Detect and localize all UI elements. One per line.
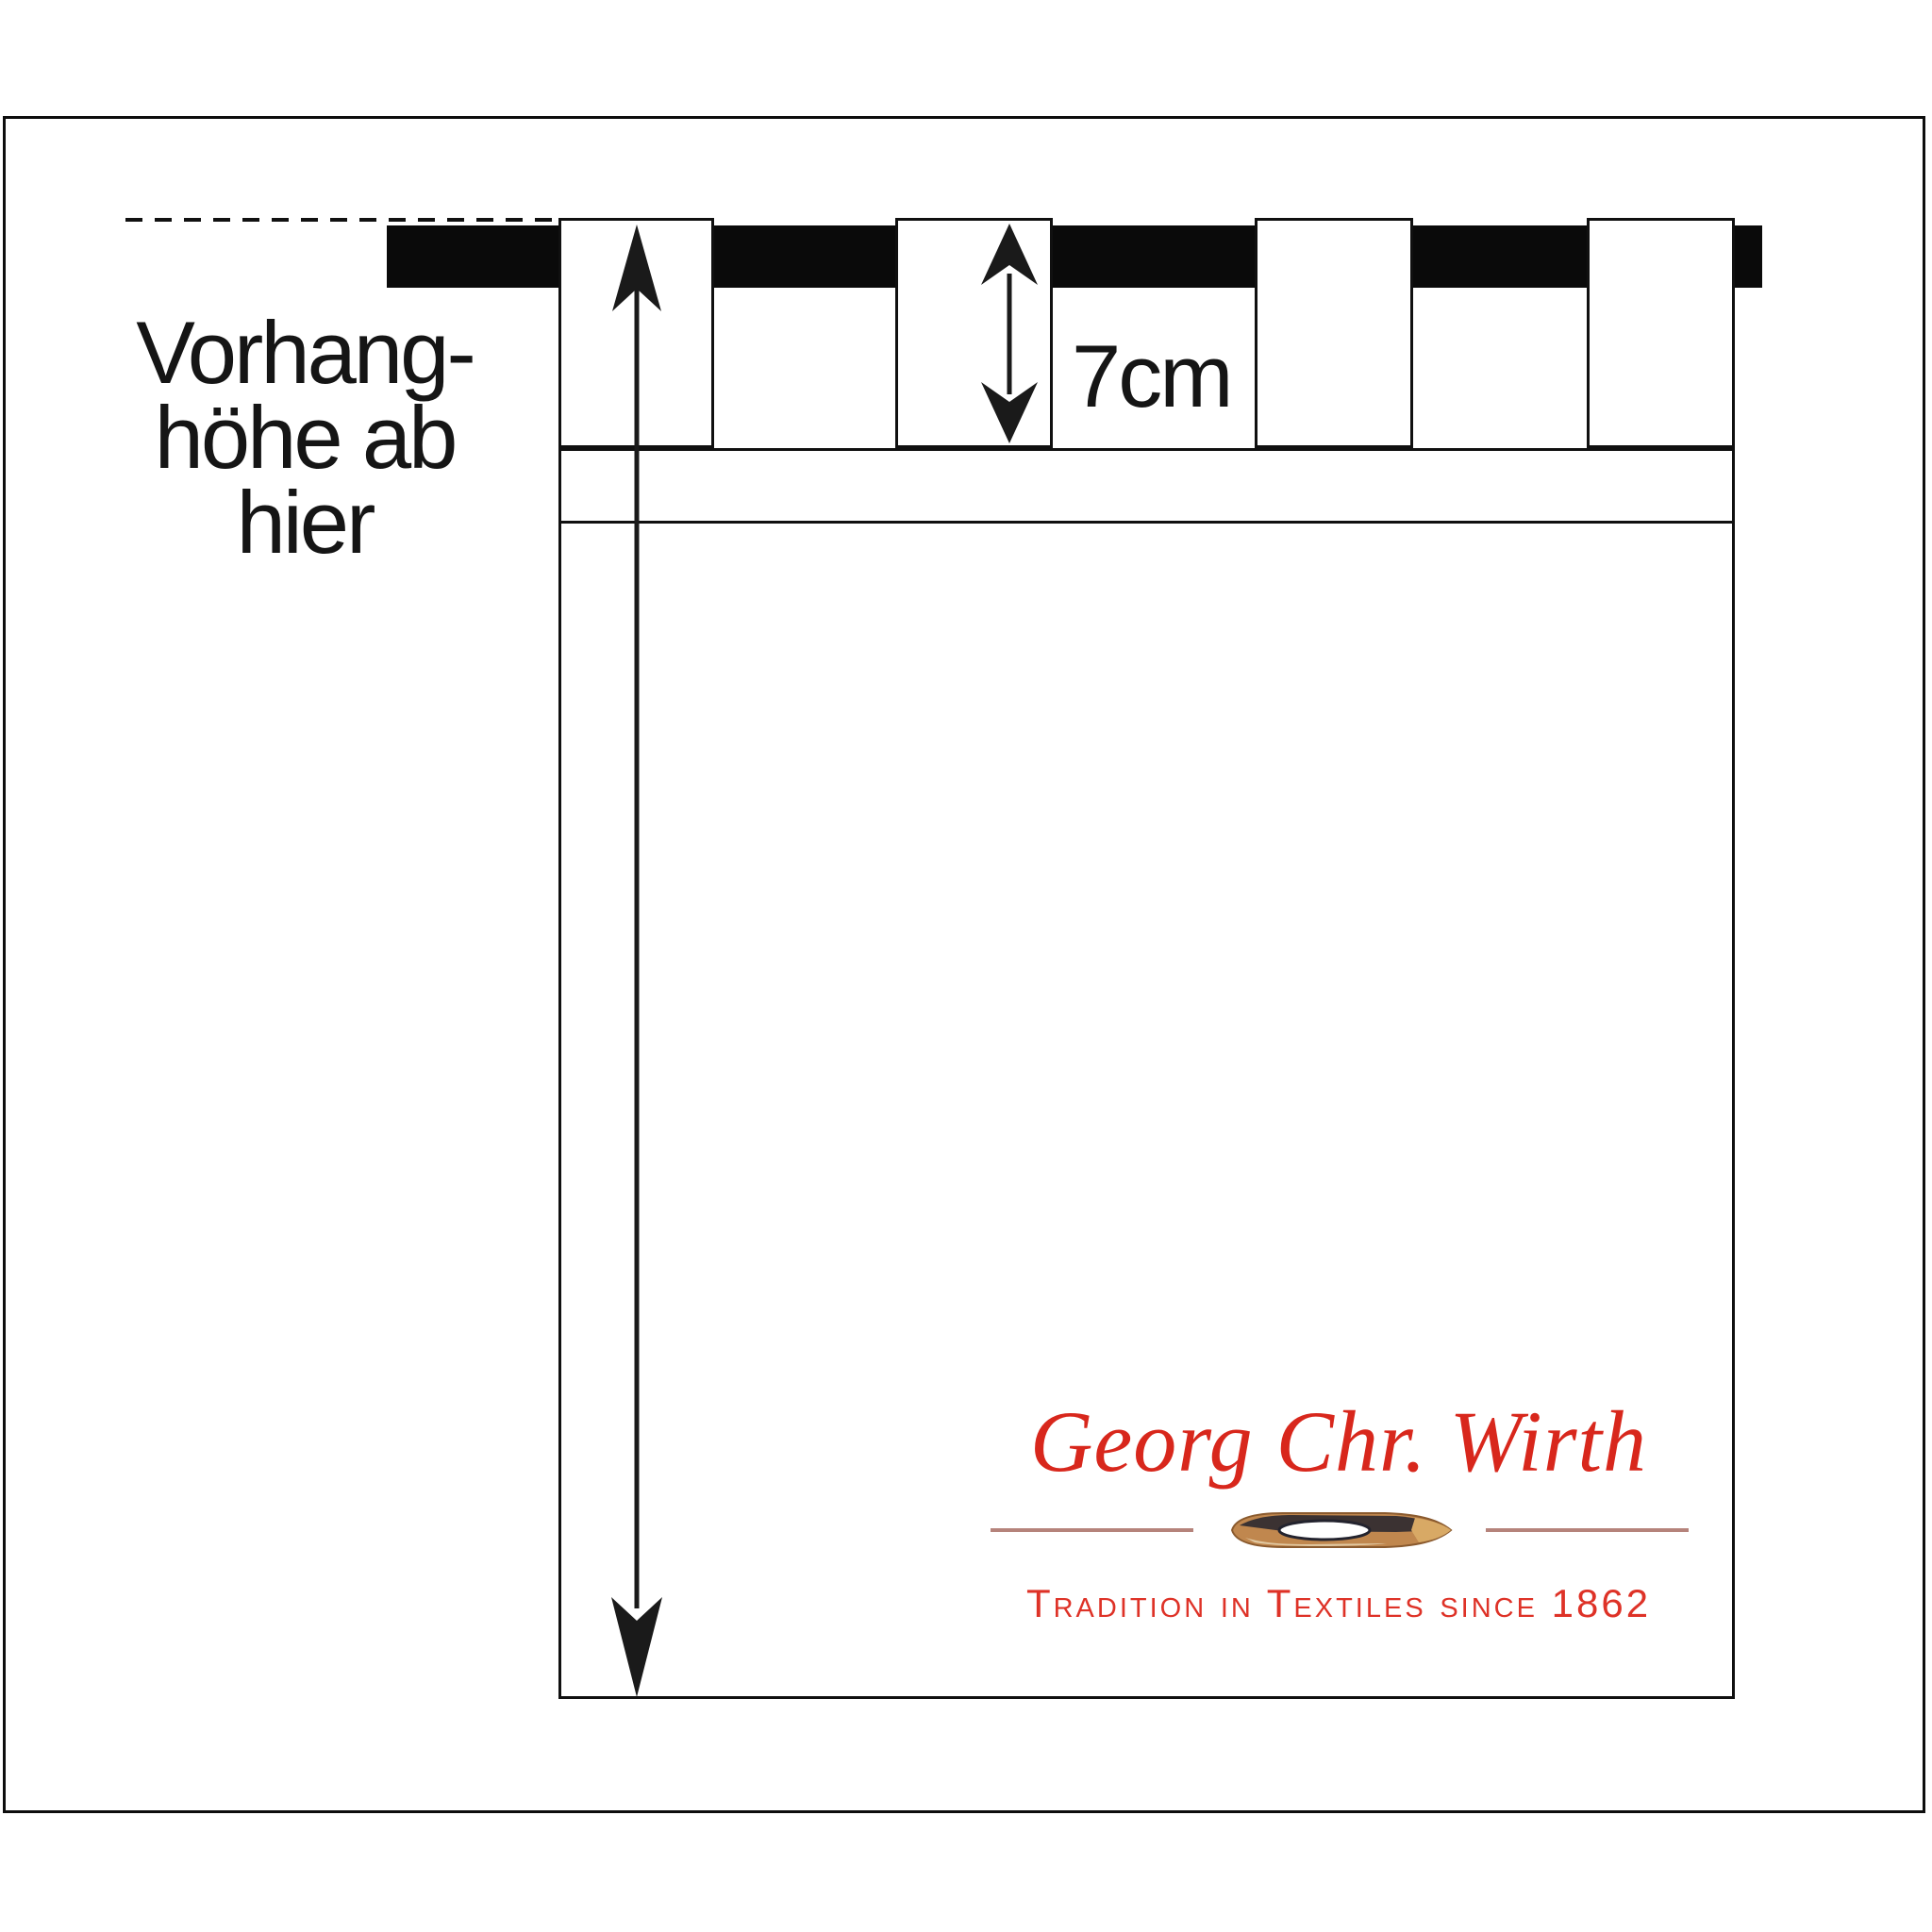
logo-divider-right xyxy=(1486,1528,1689,1532)
curtain-height-label-line2: höhe ab xyxy=(90,395,520,480)
curtain-height-label: Vorhang- höhe ab hier xyxy=(90,310,520,565)
curtain-tab-4 xyxy=(1587,218,1735,448)
tab-height-label: 7cm xyxy=(1072,332,1231,421)
ceiling-dashed-line xyxy=(125,218,559,222)
curtain-tab-1 xyxy=(558,218,714,448)
curtain-hem-band-line xyxy=(561,521,1732,524)
brand-tagline: Tradition in Textiles since 1862 xyxy=(1008,1581,1669,1626)
curtain-tab-3 xyxy=(1255,218,1413,448)
logo-divider-left xyxy=(991,1528,1193,1532)
curtain-panel xyxy=(558,448,1735,1699)
curtain-tab-2 xyxy=(895,218,1053,448)
needle-icon xyxy=(1226,1507,1457,1554)
brand-name: Georg Chr. Wirth xyxy=(1008,1396,1669,1487)
curtain-height-label-line1: Vorhang- xyxy=(90,310,520,395)
curtain-height-label-line3: hier xyxy=(90,480,520,565)
